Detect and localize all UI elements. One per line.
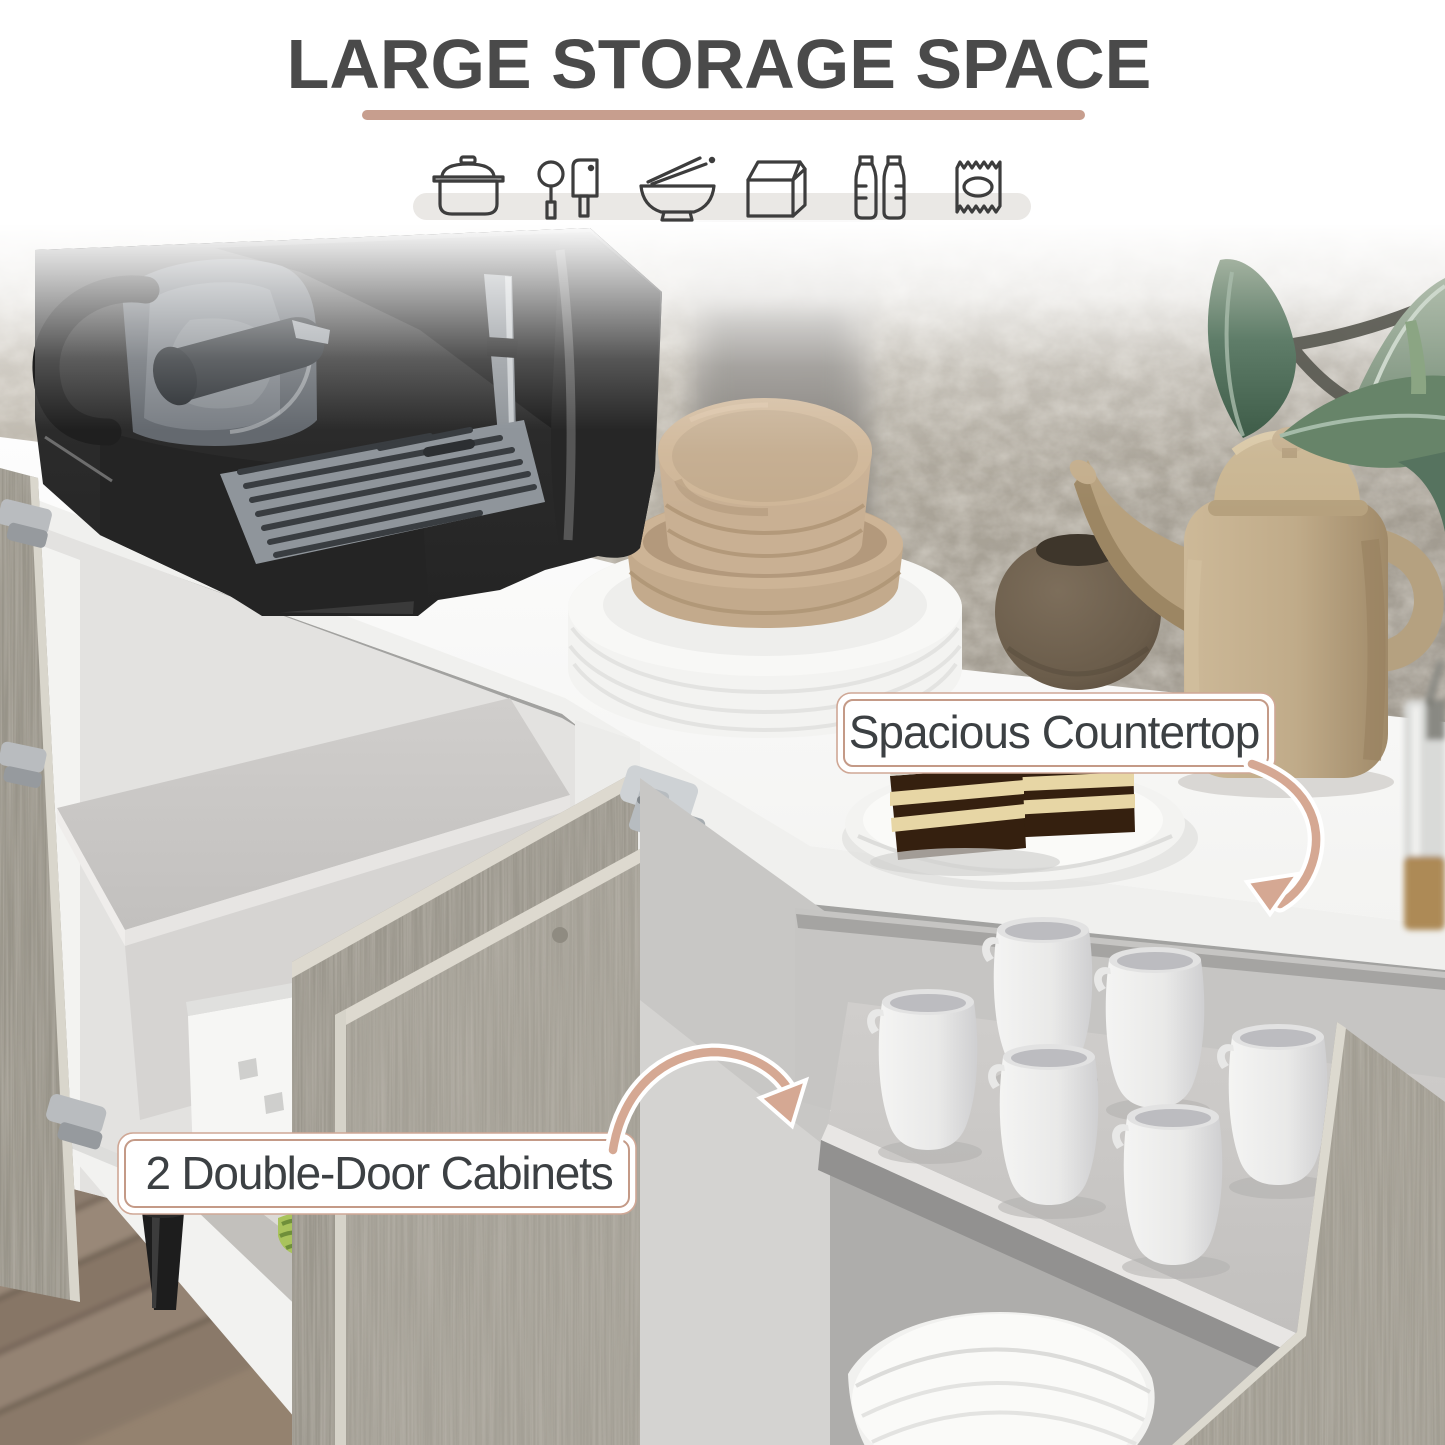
svg-text:LARGE STORAGE SPACE: LARGE STORAGE SPACE <box>287 25 1152 103</box>
svg-text:Spacious Countertop: Spacious Countertop <box>849 706 1260 758</box>
svg-text:2 Double-Door Cabinets: 2 Double-Door Cabinets <box>145 1147 612 1199</box>
